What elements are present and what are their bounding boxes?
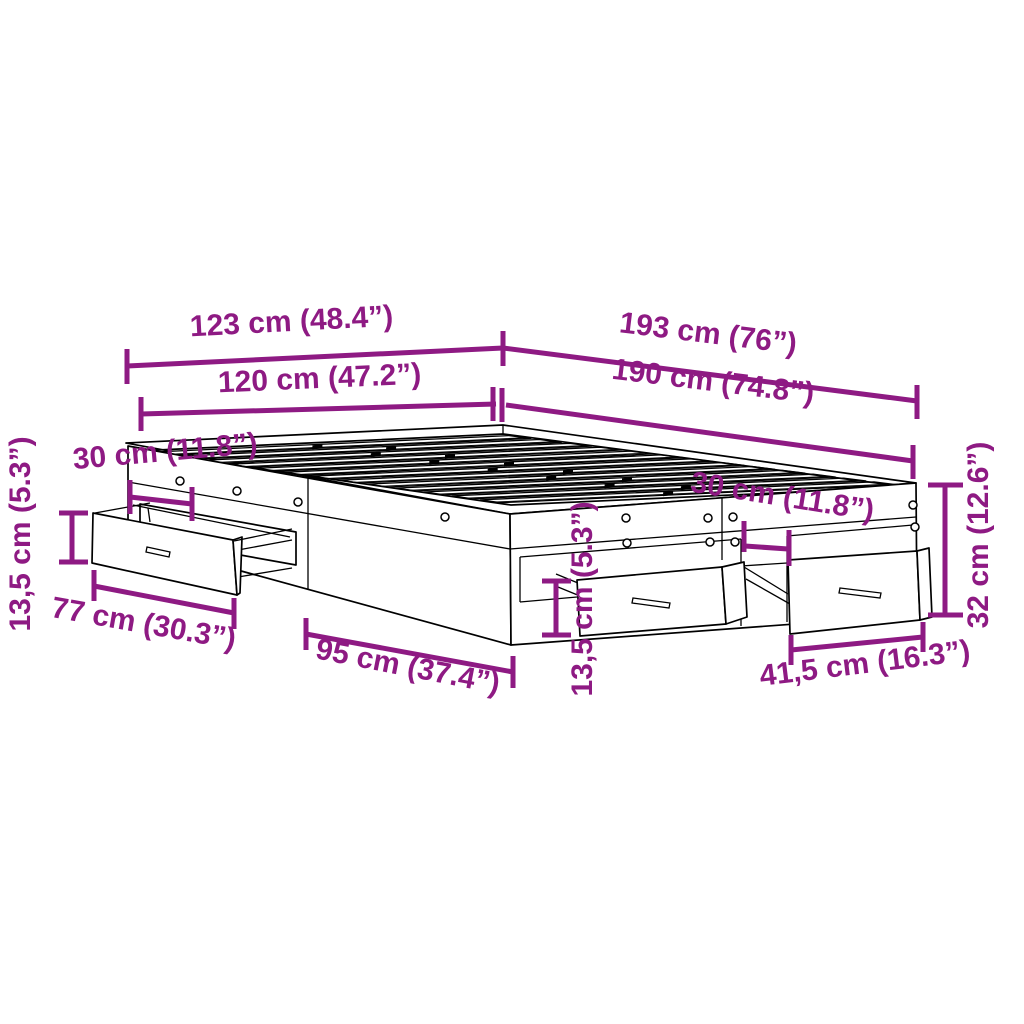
dimension-label-side-span: 95 cm (37.4”) (313, 633, 503, 701)
right-drawer-front (788, 551, 920, 634)
dim-frame-height: 32 cm (12.6”) (928, 442, 995, 629)
bed-frame-dimension-diagram: 123 cm (48.4”) 193 cm (76”) 120 cm (47.2… (0, 0, 1024, 1024)
right-drawer (788, 548, 932, 634)
middle-drawer-front (577, 567, 726, 636)
dimension-label-inner-length: 190 cm (74.8”) (610, 353, 816, 411)
dimension-label-inner-width: 120 cm (47.2”) (217, 358, 422, 400)
dimension-label-total-length: 193 cm (76”) (618, 306, 799, 361)
dim-total-length: 193 cm (76”) (503, 306, 917, 419)
middle-drawer-side (722, 562, 747, 624)
dimension-label-total-width: 123 cm (48.4”) (189, 300, 394, 344)
dimension-label-mid-drawer-height: 13,5 cm (5.3”) (566, 501, 599, 696)
dimension-label-left-drawer-height: 13,5 cm (5.3”) (4, 436, 37, 631)
dimension-label-left-drawer-width: 77 cm (30.3”) (49, 591, 239, 656)
dimension-label-frame-height: 32 cm (12.6”) (962, 442, 995, 629)
right-drawer-side (917, 548, 932, 620)
dim-inner-width: 120 cm (47.2”) (141, 358, 502, 431)
dimension-diagram-page: 123 cm (48.4”) 193 cm (76”) 120 cm (47.2… (0, 0, 1024, 1024)
